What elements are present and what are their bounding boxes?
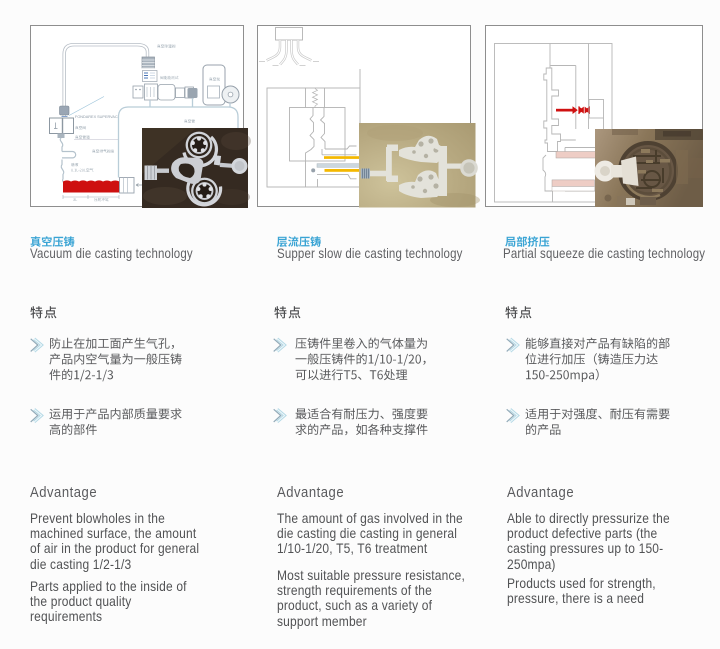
svg-text:FONDAREX SUPERVAC: FONDAREX SUPERVAC	[75, 115, 118, 119]
